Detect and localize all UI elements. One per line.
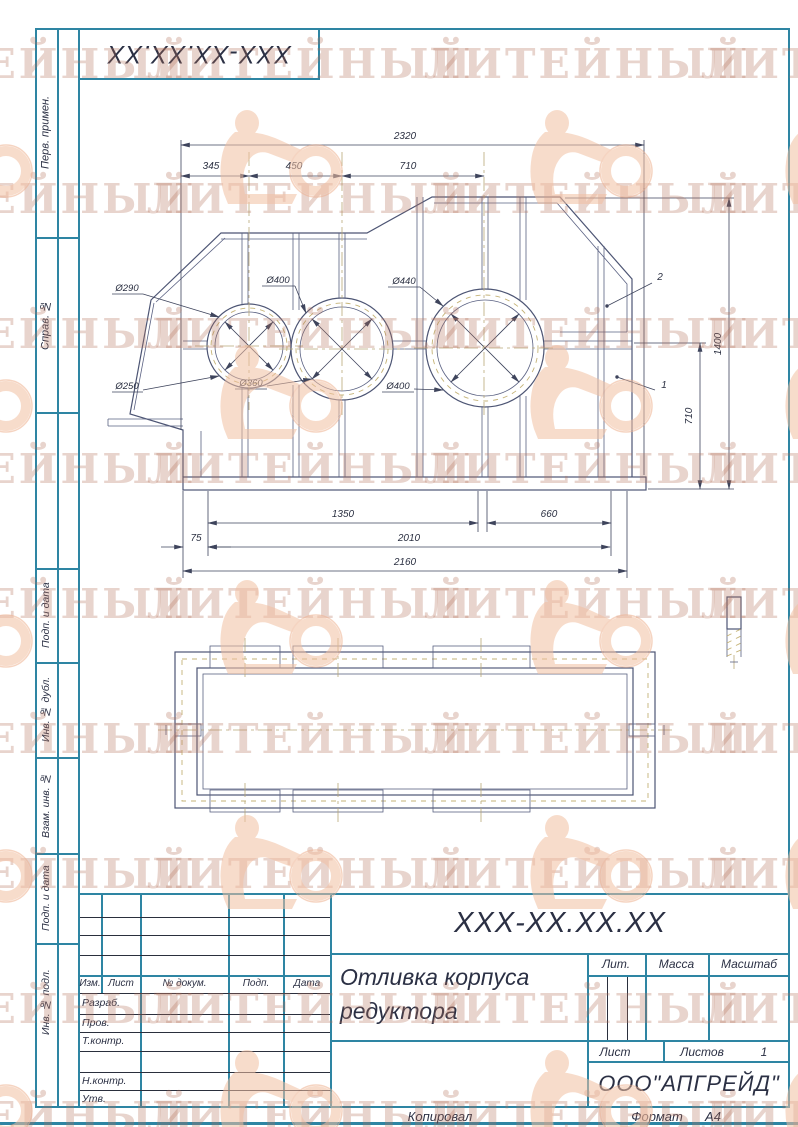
- foundry-figure-watermark: [760, 578, 798, 690]
- lit-cell-line: [607, 977, 608, 1040]
- watermark-text: ЛИТЕЙНЫЙ: [701, 985, 798, 1033]
- row-prov: Пров.: [82, 1016, 138, 1030]
- frame-left: [78, 28, 80, 1108]
- title-block-line: [663, 1040, 665, 1061]
- watermark-text: ЛИТЕЙНЫЙ: [424, 580, 750, 628]
- foundry-figure-watermark: [0, 343, 35, 455]
- watermark-text: ЛИТЕЙНЫЙ: [0, 175, 196, 223]
- sign-row-line: [80, 1014, 330, 1015]
- watermark-figure: [0, 343, 35, 460]
- svg-text:1400: 1400: [713, 332, 724, 355]
- revision-row-line: [80, 935, 330, 936]
- svg-text:75: 75: [190, 533, 202, 544]
- watermark-text: ЛИТЕЙНЫЙ: [147, 175, 473, 223]
- drawing-sheet: 2320 345 450 710 1350 660 75 2010: [0, 0, 798, 1127]
- diameter-labels: Ø290 Ø250 Ø400 Ø360 Ø440 Ø400: [112, 275, 443, 392]
- scale-label: Масштаб: [710, 956, 788, 972]
- bore-1: [195, 304, 303, 388]
- foundry-figure-watermark: [0, 578, 35, 690]
- title-block-line: [587, 975, 788, 977]
- watermark-text: ЛИТЕЙНЫЙ: [424, 445, 750, 493]
- watermark-text: ЛИТЕЙНЫЙ: [147, 580, 473, 628]
- watermark-figure: [195, 578, 345, 695]
- margin-label-inv-podl: Инв. № подл.: [35, 945, 57, 1060]
- watermark-text: ЛИТЕЙНЫЙ: [147, 850, 473, 898]
- watermark-text: ЛИТЕЙНЫЙ: [424, 40, 750, 88]
- watermark-text: ЛИТЕЙНЫЙ: [0, 310, 196, 358]
- margin-label-podp-data-2: Подп. и дата: [35, 855, 57, 941]
- sign-row-line: [80, 1090, 330, 1091]
- frame-right: [788, 28, 790, 1108]
- watermark-text: ЛИТЕЙНЫЙ: [147, 715, 473, 763]
- row-nkontr: Н.контр.: [82, 1074, 138, 1088]
- title-block-line: [283, 893, 285, 1106]
- watermark-text: ЛИТЕЙНЫЙ: [701, 850, 798, 898]
- sign-row-line: [80, 1051, 330, 1052]
- watermark-figure: [760, 578, 798, 695]
- foundry-figure-watermark: [505, 578, 655, 690]
- svg-text:450: 450: [286, 161, 303, 172]
- watermark-text: ЛИТЕЙНЫЙ: [0, 445, 196, 493]
- mass-label: Масса: [647, 956, 706, 972]
- watermark-figure: [505, 343, 655, 460]
- watermark-figure: [0, 108, 35, 225]
- bore-2: [279, 298, 405, 400]
- watermark-text: ЛИТЕЙНЫЙ: [701, 40, 798, 88]
- foundry-figure-watermark: [195, 1048, 345, 1127]
- sign-row-line: [80, 1072, 330, 1073]
- margin-label-sprav-no: Справ. №: [35, 239, 57, 410]
- dim-bottom: 1350 660 75 2010 2160: [161, 509, 627, 571]
- watermark-text: ЛИТЕЙНЫЙ: [424, 175, 750, 223]
- margin-divider: [35, 412, 78, 414]
- watermark-text: ЛИТЕЙНЫЙ: [147, 445, 473, 493]
- watermark-figure: [505, 578, 655, 695]
- svg-text:1: 1: [661, 380, 667, 391]
- sign-row-line: [80, 993, 330, 994]
- company-name: ООО"АПГРЕЙД": [590, 1064, 788, 1104]
- svg-text:2320: 2320: [393, 131, 417, 142]
- front-view: 2320 345 450 710 1350 660 75 2010: [108, 131, 734, 578]
- sign-row-line: [80, 1032, 330, 1033]
- corner-stamp-border: [78, 78, 320, 80]
- watermark-figure: [195, 1048, 345, 1127]
- format-label: Формат: [625, 1109, 689, 1124]
- svg-text:Ø440: Ø440: [391, 276, 416, 287]
- lit-cell-line: [627, 977, 628, 1040]
- title-block-top: [78, 893, 790, 895]
- watermark-figure: [0, 1048, 35, 1127]
- svg-text:1350: 1350: [332, 509, 355, 520]
- watermark-figure: [195, 108, 345, 225]
- margin-label-perv-primen: Перв. примен.: [35, 30, 57, 235]
- title-block-line: [228, 893, 230, 1106]
- svg-text:660: 660: [541, 509, 558, 520]
- watermark-text: ЛИТЕЙНЫЙ: [701, 310, 798, 358]
- title-block-line: [330, 953, 790, 955]
- watermark-text: ЛИТЕЙНЫЙ: [701, 580, 798, 628]
- watermark-figure: [195, 813, 345, 930]
- watermark-text: ЛИТЕЙНЫЙ: [0, 850, 196, 898]
- watermark-text: ЛИТЕЙНЫЙ: [424, 715, 750, 763]
- sheets-label: Листов: [672, 1044, 732, 1059]
- foundry-figure-watermark: [505, 343, 655, 455]
- margin-label-vzam-inv: Взам. инв. №: [35, 759, 57, 851]
- title-block-line: [330, 893, 332, 1106]
- foundry-figure-watermark: [195, 108, 345, 220]
- revision-row-line: [80, 955, 330, 956]
- foundry-figure-watermark: [0, 108, 35, 220]
- foundry-figure-watermark: [0, 1048, 35, 1127]
- svg-text:Ø400: Ø400: [385, 381, 410, 392]
- watermark-text: ЛИТЕЙНЫЙ: [701, 445, 798, 493]
- margin-label-podp-data-1: Подп. и дата: [35, 570, 57, 660]
- watermark-figure: [760, 108, 798, 225]
- svg-text:2010: 2010: [397, 533, 421, 544]
- watermark-text: ЛИТЕЙНЫЙ: [0, 715, 196, 763]
- watermark-text: ЛИТЕЙНЫЙ: [147, 310, 473, 358]
- foundry-figure-watermark: [195, 813, 345, 925]
- foundry-figure-watermark: [195, 578, 345, 690]
- foundry-figure-watermark: [505, 108, 655, 220]
- row-utv: Утв.: [82, 1092, 138, 1106]
- copied-label: Копировал: [380, 1109, 500, 1124]
- foundry-figure-watermark: [760, 108, 798, 220]
- watermark-text: ЛИТЕЙНЫЙ: [701, 715, 798, 763]
- watermark-figure: [505, 108, 655, 225]
- corner-stamp-designation: XXX-XX.XX.XX: [80, 30, 318, 78]
- rib-detail: [727, 597, 741, 670]
- dim-right: 710 1400: [684, 198, 729, 489]
- watermark-figure: [0, 813, 35, 930]
- watermark-figure: [195, 343, 345, 460]
- svg-text:2160: 2160: [393, 557, 417, 568]
- col-podp: Подп.: [230, 977, 282, 991]
- row-razrab: Разраб.: [82, 996, 138, 1010]
- watermark-figure: [0, 578, 35, 695]
- svg-text:345: 345: [203, 161, 220, 172]
- watermark-text: ЛИТЕЙНЫЙ: [424, 310, 750, 358]
- svg-text:Ø250: Ø250: [114, 381, 139, 392]
- col-data: Дата: [285, 977, 329, 991]
- watermark-text: ЛИТЕЙНЫЙ: [424, 850, 750, 898]
- col-izm: Изм.: [79, 977, 101, 991]
- part-name-line1: Отливка корпуса: [340, 962, 580, 992]
- format-value: А4: [696, 1109, 730, 1124]
- sheets-value: 1: [752, 1044, 776, 1059]
- col-list: Лист: [103, 977, 139, 991]
- svg-text:710: 710: [400, 161, 417, 172]
- title-block-line: [330, 1040, 788, 1042]
- dim-top: 2320 345 450 710: [181, 131, 644, 176]
- foundry-figure-watermark: [760, 343, 798, 455]
- bore-3: [414, 289, 556, 407]
- foundry-figure-watermark: [0, 813, 35, 925]
- frame-bottom: [35, 1106, 790, 1108]
- svg-text:710: 710: [684, 407, 695, 424]
- revision-row-line: [80, 917, 330, 918]
- row-tkontr: Т.контр.: [82, 1034, 138, 1048]
- title-block-line: [587, 1061, 788, 1063]
- corner-stamp-border: [318, 28, 320, 80]
- margin-label-inv-dubl: Инв. № дубл.: [35, 664, 57, 755]
- watermark-text: ЛИТЕЙНЫЙ: [701, 175, 798, 223]
- foundry-figure-watermark: [195, 343, 345, 455]
- title-block-line: [140, 893, 142, 1106]
- title-designation: XXX-XX.XX.XX: [335, 897, 785, 949]
- watermark-text: ЛИТЕЙНЫЙ: [0, 580, 196, 628]
- watermark-figure: [760, 343, 798, 460]
- svg-text:2: 2: [656, 272, 663, 283]
- svg-text:Ø360: Ø360: [238, 378, 263, 389]
- position-callouts: 2 1: [605, 272, 666, 391]
- sheet-label: Лист: [592, 1044, 638, 1059]
- svg-text:Ø290: Ø290: [114, 283, 139, 294]
- col-doc: № докум.: [142, 977, 227, 991]
- lit-label: Лит.: [589, 956, 643, 972]
- plan-view: [158, 638, 672, 822]
- svg-text:Ø400: Ø400: [265, 275, 290, 286]
- part-name-line2: редуктора: [340, 996, 580, 1026]
